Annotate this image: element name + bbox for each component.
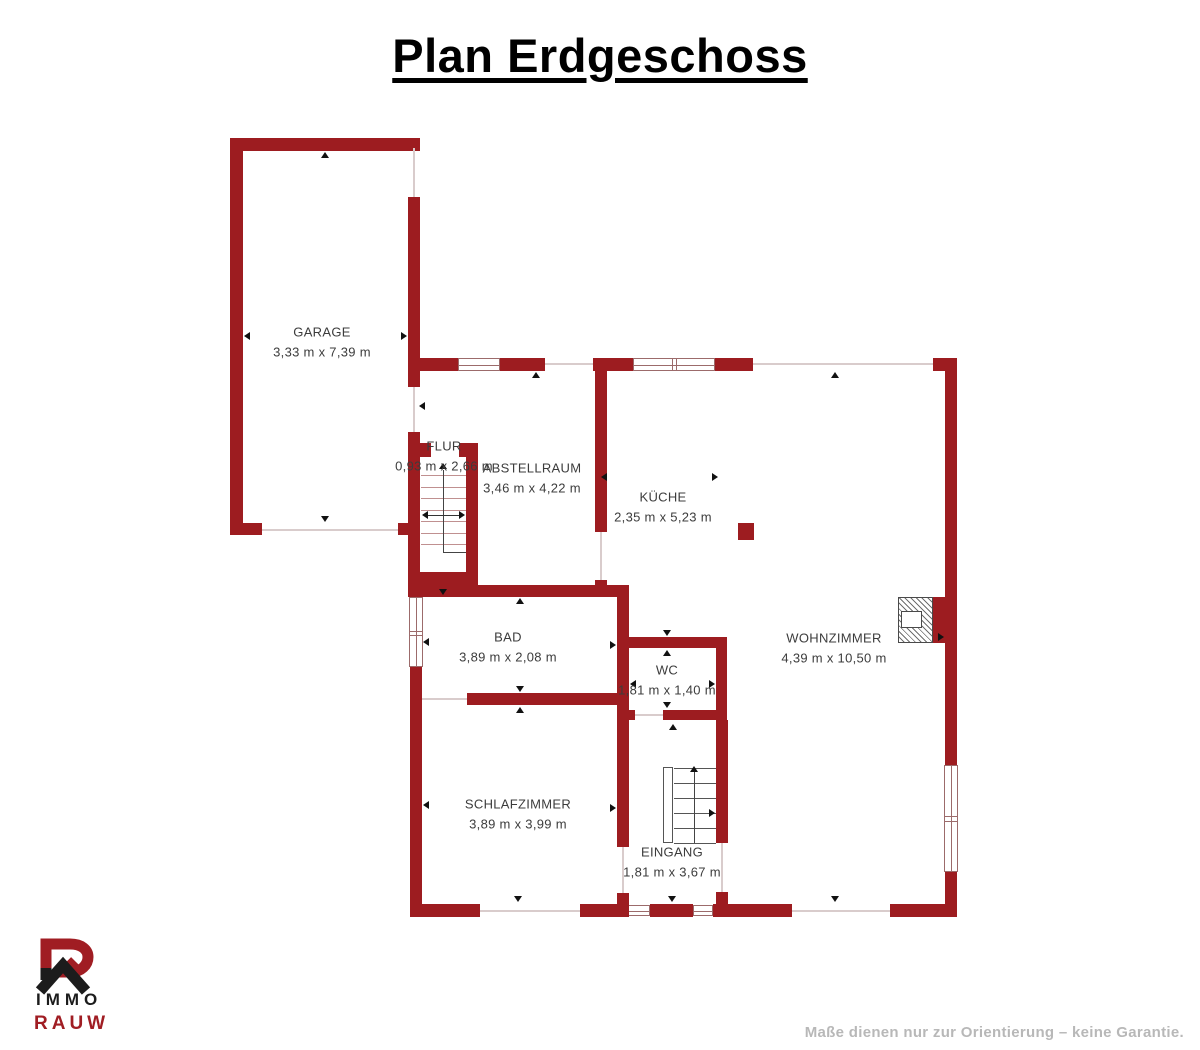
tick-mark xyxy=(244,332,250,340)
room-dims: 3,89 m x 2,08 m xyxy=(459,647,557,667)
wall-bad-wc-divider xyxy=(617,585,629,720)
arrow-head xyxy=(459,511,465,519)
room-dims: 4,39 m x 10,50 m xyxy=(781,648,886,668)
wall-bottom-eingang xyxy=(650,904,693,917)
window-wohnzimmer-right xyxy=(944,765,958,872)
wall-eingang-left-stub xyxy=(617,893,629,917)
tick-mark xyxy=(321,152,329,158)
stair-step xyxy=(674,783,716,784)
wall-garage-bottom-left xyxy=(230,523,262,535)
wall-top-a xyxy=(420,358,458,371)
wall-right-a xyxy=(945,358,957,597)
room-name: KÜCHE xyxy=(639,488,686,508)
stair-step xyxy=(674,798,716,799)
tick-mark xyxy=(514,896,522,902)
floor-plan-page: Plan Erdgeschoss xyxy=(0,0,1200,1050)
tick-mark xyxy=(516,686,524,692)
room-dims: 1,81 m x 3,67 m xyxy=(623,862,721,882)
tick-mark xyxy=(321,516,329,522)
tick-mark xyxy=(663,650,671,656)
tick-mark xyxy=(669,724,677,730)
door-abstell-kueche xyxy=(600,532,602,580)
door-bad-schlaf xyxy=(422,698,467,700)
tick-mark xyxy=(601,473,607,481)
room-label-garage: GARAGE 3,33 m x 7,39 m xyxy=(273,323,371,362)
tick-mark xyxy=(712,473,718,481)
window-eingang-bottom-2 xyxy=(693,905,713,916)
stair-width-arrow xyxy=(425,515,462,516)
pillar xyxy=(738,523,754,540)
opening-garage-side xyxy=(413,148,415,197)
wall-top-b xyxy=(500,358,545,371)
wall-wc-right xyxy=(716,637,727,720)
door-garage-flur xyxy=(413,387,415,432)
wall-bad-left xyxy=(410,667,422,705)
arrow-head xyxy=(422,511,428,519)
room-label-wohnzimmer: WOHNZIMMER 4,39 m x 10,50 m xyxy=(781,629,886,668)
tick-mark xyxy=(831,896,839,902)
wall-garage-right-a xyxy=(408,138,420,148)
window-bad-left xyxy=(409,597,423,667)
room-dims: 2,35 m x 5,23 m xyxy=(614,507,712,527)
room-dims: 3,33 m x 7,39 m xyxy=(273,342,371,362)
room-name: FLUR xyxy=(426,437,461,457)
chimney-wall-block xyxy=(933,597,957,643)
garage-door-opening xyxy=(262,529,398,531)
wall-schlaf-left xyxy=(410,705,422,917)
tick-mark xyxy=(419,402,425,410)
tick-mark xyxy=(663,630,671,636)
tick-mark xyxy=(610,804,616,812)
logo-text-immo: IMMO xyxy=(36,990,102,1010)
page-title: Plan Erdgeschoss xyxy=(392,28,808,83)
room-label-wc: WC 1,81 m x 1,40 m xyxy=(618,661,716,700)
stair-up-arrow xyxy=(690,766,698,772)
tick-mark xyxy=(668,896,676,902)
room-name: GARAGE xyxy=(293,323,350,343)
room-label-schlafzimmer: SCHLAFZIMMER 3,89 m x 3,99 m xyxy=(465,795,571,834)
logo-mark-icon xyxy=(30,934,102,996)
wall-top-d xyxy=(715,358,753,371)
window-kueche-top xyxy=(633,358,715,371)
wall-bad-bottom xyxy=(467,693,617,705)
tick-mark xyxy=(532,372,540,378)
room-name: WC xyxy=(656,661,678,681)
stair-center-line xyxy=(694,772,695,843)
opening-wohnzimmer-top xyxy=(753,363,933,365)
room-name: ABSTELLRAUM xyxy=(483,459,582,479)
window-eingang-bottom-1 xyxy=(628,905,650,916)
tick-mark xyxy=(401,332,407,340)
tick-mark xyxy=(831,372,839,378)
wall-garage-left xyxy=(230,138,243,535)
tick-mark xyxy=(610,641,616,649)
chimney-flue xyxy=(901,611,922,628)
disclaimer-text: Maße dienen nur zur Orientierung – keine… xyxy=(805,1024,1184,1041)
door-wc xyxy=(635,714,663,716)
room-name: BAD xyxy=(494,628,522,648)
tick-mark xyxy=(423,801,429,809)
logo-text-rauw: RAUW xyxy=(34,1013,109,1035)
room-label-eingang: EINGANG 1,81 m x 3,67 m xyxy=(623,843,721,882)
wall-wc-bottom-b xyxy=(663,710,727,720)
stair-center-line xyxy=(443,470,444,552)
room-dims: 0,93 m x 2,66 m xyxy=(395,456,493,476)
wall-wc-top xyxy=(617,637,727,648)
company-logo: IMMO RAUW xyxy=(30,934,160,1001)
room-dims: 1,81 m x 1,40 m xyxy=(618,680,716,700)
opening-schlaf-bottom xyxy=(480,910,580,912)
stair-newel xyxy=(663,767,673,843)
stair-center-line xyxy=(443,552,466,553)
room-name: WOHNZIMMER xyxy=(786,629,881,649)
tick-mark xyxy=(516,598,524,604)
room-dims: 3,46 m x 4,22 m xyxy=(483,478,581,498)
wall-garage-bottom-right xyxy=(398,523,420,535)
room-dims: 3,89 m x 3,99 m xyxy=(469,814,567,834)
room-label-kueche: KÜCHE 2,35 m x 5,23 m xyxy=(614,488,712,527)
tick-mark xyxy=(938,633,944,641)
wall-eingang-right xyxy=(716,720,728,843)
wall-eingang-left xyxy=(617,720,629,847)
room-label-flur: FLUR 0,93 m x 2,66 m xyxy=(395,437,493,476)
tick-mark xyxy=(439,589,447,595)
room-name: EINGANG xyxy=(641,843,703,863)
wall-garage-right-b xyxy=(408,197,420,387)
tick-mark xyxy=(663,702,671,708)
tick-mark xyxy=(423,638,429,646)
door-eingang-wohn xyxy=(721,843,723,892)
wall-divider-abstell-kueche xyxy=(595,358,607,532)
wall-bottom-wohn-b xyxy=(890,904,957,917)
opening-abstellraum-top xyxy=(545,363,593,365)
wall-wc-bottom-a xyxy=(617,710,635,720)
room-label-bad: BAD 3,89 m x 2,08 m xyxy=(459,628,557,667)
opening-wohn-bottom xyxy=(792,910,890,912)
wall-garage-top xyxy=(230,138,420,151)
tick-mark xyxy=(709,809,715,817)
wall-eingang-right-stub xyxy=(716,892,728,917)
room-label-abstellraum: ABSTELLRAUM 3,46 m x 4,22 m xyxy=(483,459,582,498)
room-name: SCHLAFZIMMER xyxy=(465,795,571,815)
wall-right-b xyxy=(945,643,957,765)
window-flur-top xyxy=(458,358,500,371)
tick-mark xyxy=(516,707,524,713)
stair-step xyxy=(674,828,716,829)
